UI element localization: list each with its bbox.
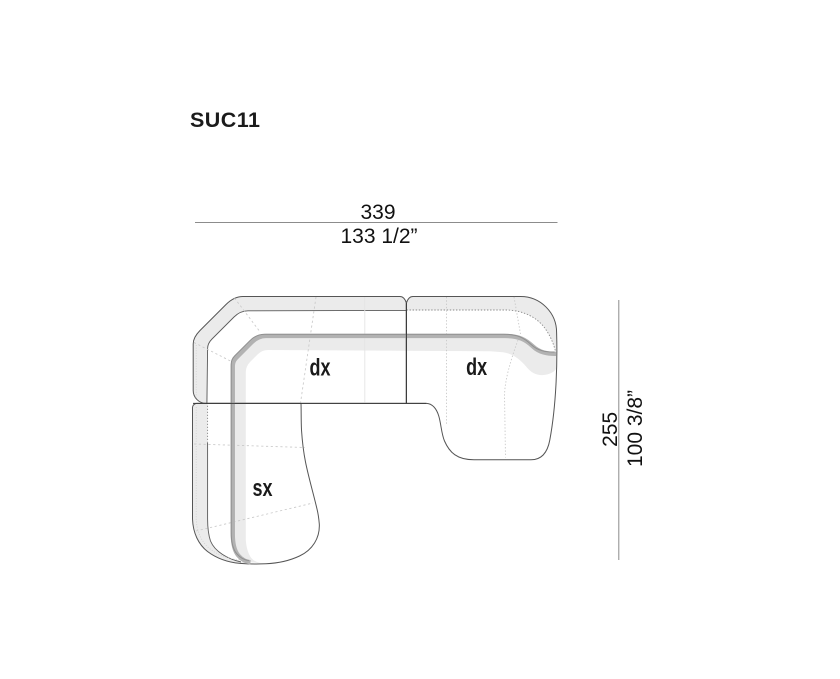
svg-text:100 3/8”: 100 3/8” [624, 390, 647, 467]
svg-text:133 1/2”: 133 1/2” [340, 225, 417, 248]
svg-text:255: 255 [599, 412, 622, 447]
svg-text:339: 339 [360, 201, 395, 224]
svg-text:dx: dx [466, 355, 487, 381]
svg-text:SUC11: SUC11 [190, 108, 260, 132]
svg-text:sx: sx [252, 476, 272, 502]
svg-text:dx: dx [309, 355, 330, 381]
